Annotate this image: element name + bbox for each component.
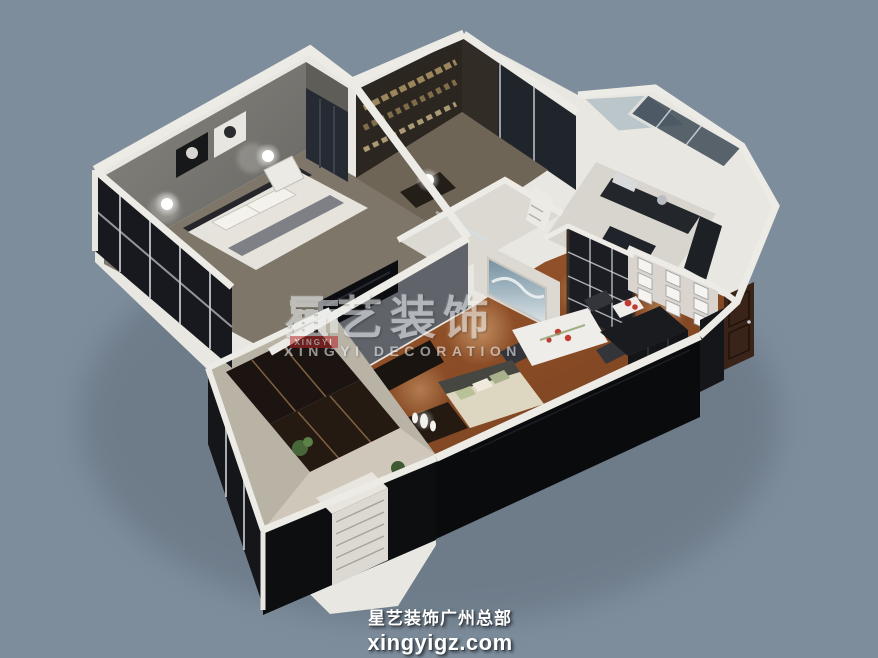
red-flowers	[632, 304, 638, 310]
bedside-lamp	[161, 198, 173, 210]
bedside-lamp	[262, 150, 274, 162]
white-vase	[430, 421, 436, 432]
range-hood	[657, 195, 667, 205]
tree-canopy	[224, 126, 236, 138]
red-flowers	[565, 335, 571, 341]
apartment-3d-scene	[0, 0, 878, 658]
white-vase	[412, 413, 418, 424]
door-knob	[747, 320, 751, 324]
red-flowers	[625, 300, 632, 307]
plant	[303, 437, 313, 447]
white-vase	[420, 414, 428, 429]
floorplan-render-image: XINGYI 星艺装饰 XINGYI DECORATION 星艺装饰广州总部 x…	[0, 0, 878, 658]
tree-canopy	[186, 147, 198, 159]
